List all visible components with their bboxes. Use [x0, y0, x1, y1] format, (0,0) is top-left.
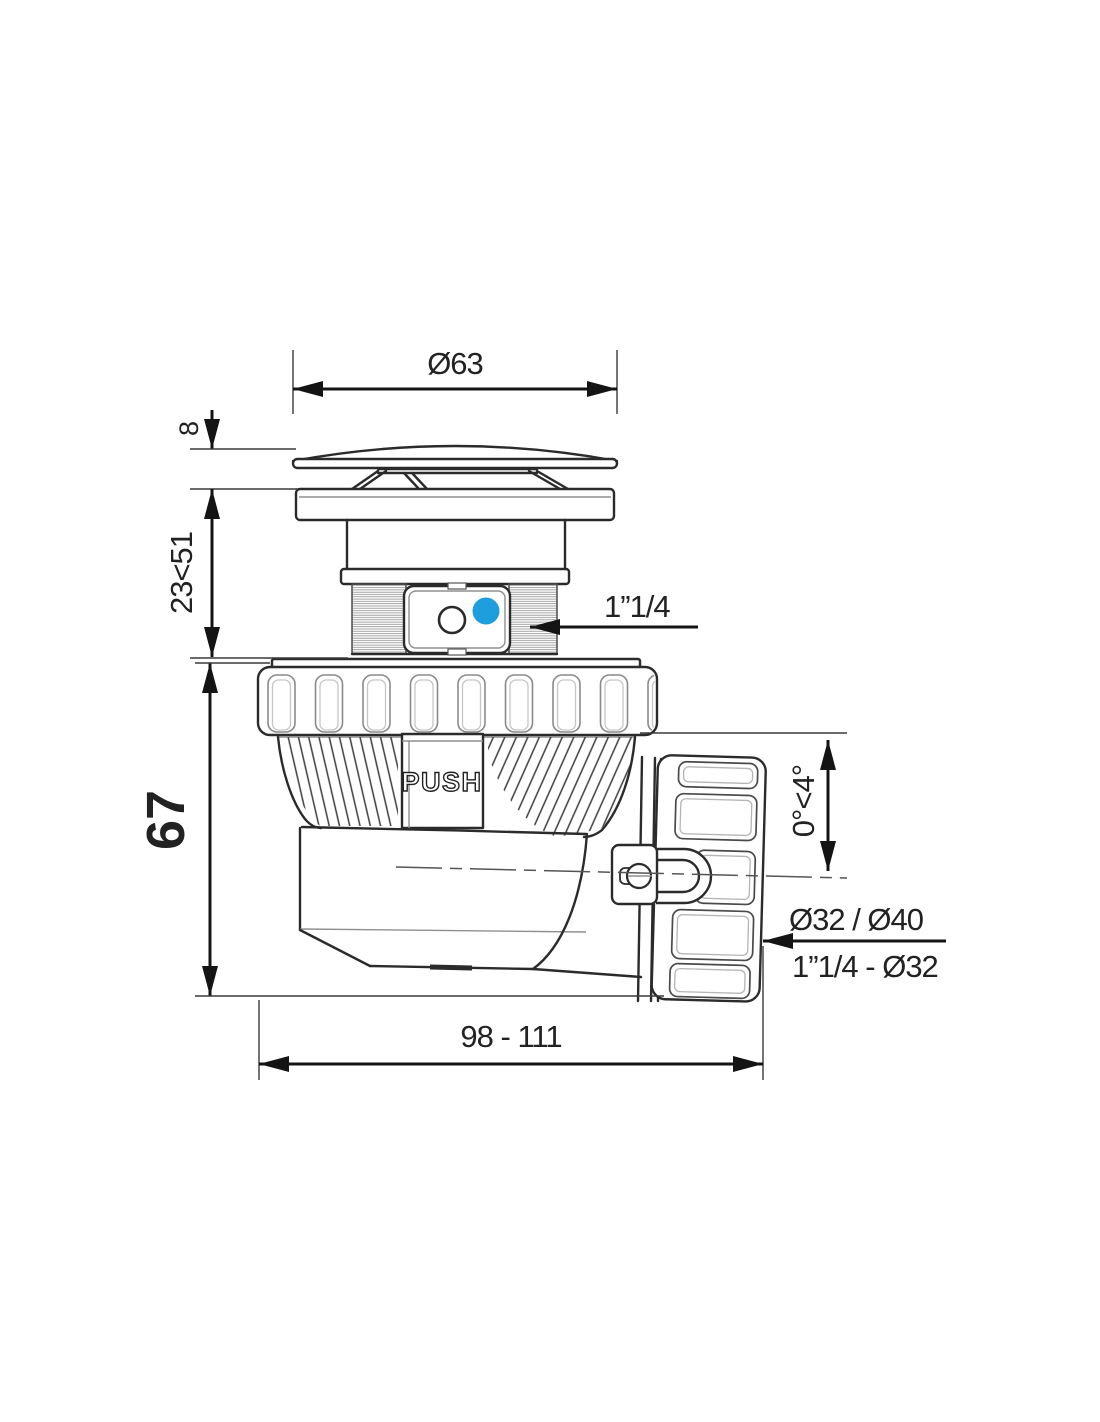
swivel-loop — [656, 849, 711, 903]
top-flange — [296, 489, 614, 520]
trap-body — [300, 828, 641, 977]
dim-cap-diameter: Ø63 — [293, 346, 617, 414]
outlet-thread-label: 1”1/4 - Ø32 — [792, 949, 938, 984]
cap-diameter-label: Ø63 — [427, 346, 483, 381]
plate-hole — [439, 607, 465, 633]
locking-ring-nut — [258, 667, 675, 735]
push-tab: PUSH — [401, 734, 483, 828]
push-label: PUSH — [401, 767, 482, 797]
tilt-angle-label: 0°<4° — [786, 765, 821, 837]
drain-assembly-diagram: PUSH — [0, 0, 1100, 1422]
upper-cylinder — [341, 520, 569, 584]
pop-up-cap — [293, 446, 617, 468]
clamp-range-label: 23<51 — [164, 532, 199, 614]
technical-drawing-page: PUSH — [0, 0, 1100, 1422]
dim-cap-height: 8 — [174, 410, 298, 489]
dim-outlet-connection: Ø32 / Ø40 1”1/4 - Ø32 — [763, 902, 946, 984]
keyhole-tab — [612, 845, 657, 904]
body-height-label: 67 — [136, 790, 196, 850]
cap-height-label: 8 — [174, 422, 204, 436]
inlet-thread-label: 1”1/4 — [604, 589, 670, 624]
blue-indicator-dot — [473, 598, 500, 625]
cap-underside — [352, 469, 568, 489]
outlet-sizes-label: Ø32 / Ø40 — [789, 902, 924, 937]
clamp-plate — [404, 583, 510, 655]
overall-length-label: 98 - 111 — [460, 1019, 561, 1054]
